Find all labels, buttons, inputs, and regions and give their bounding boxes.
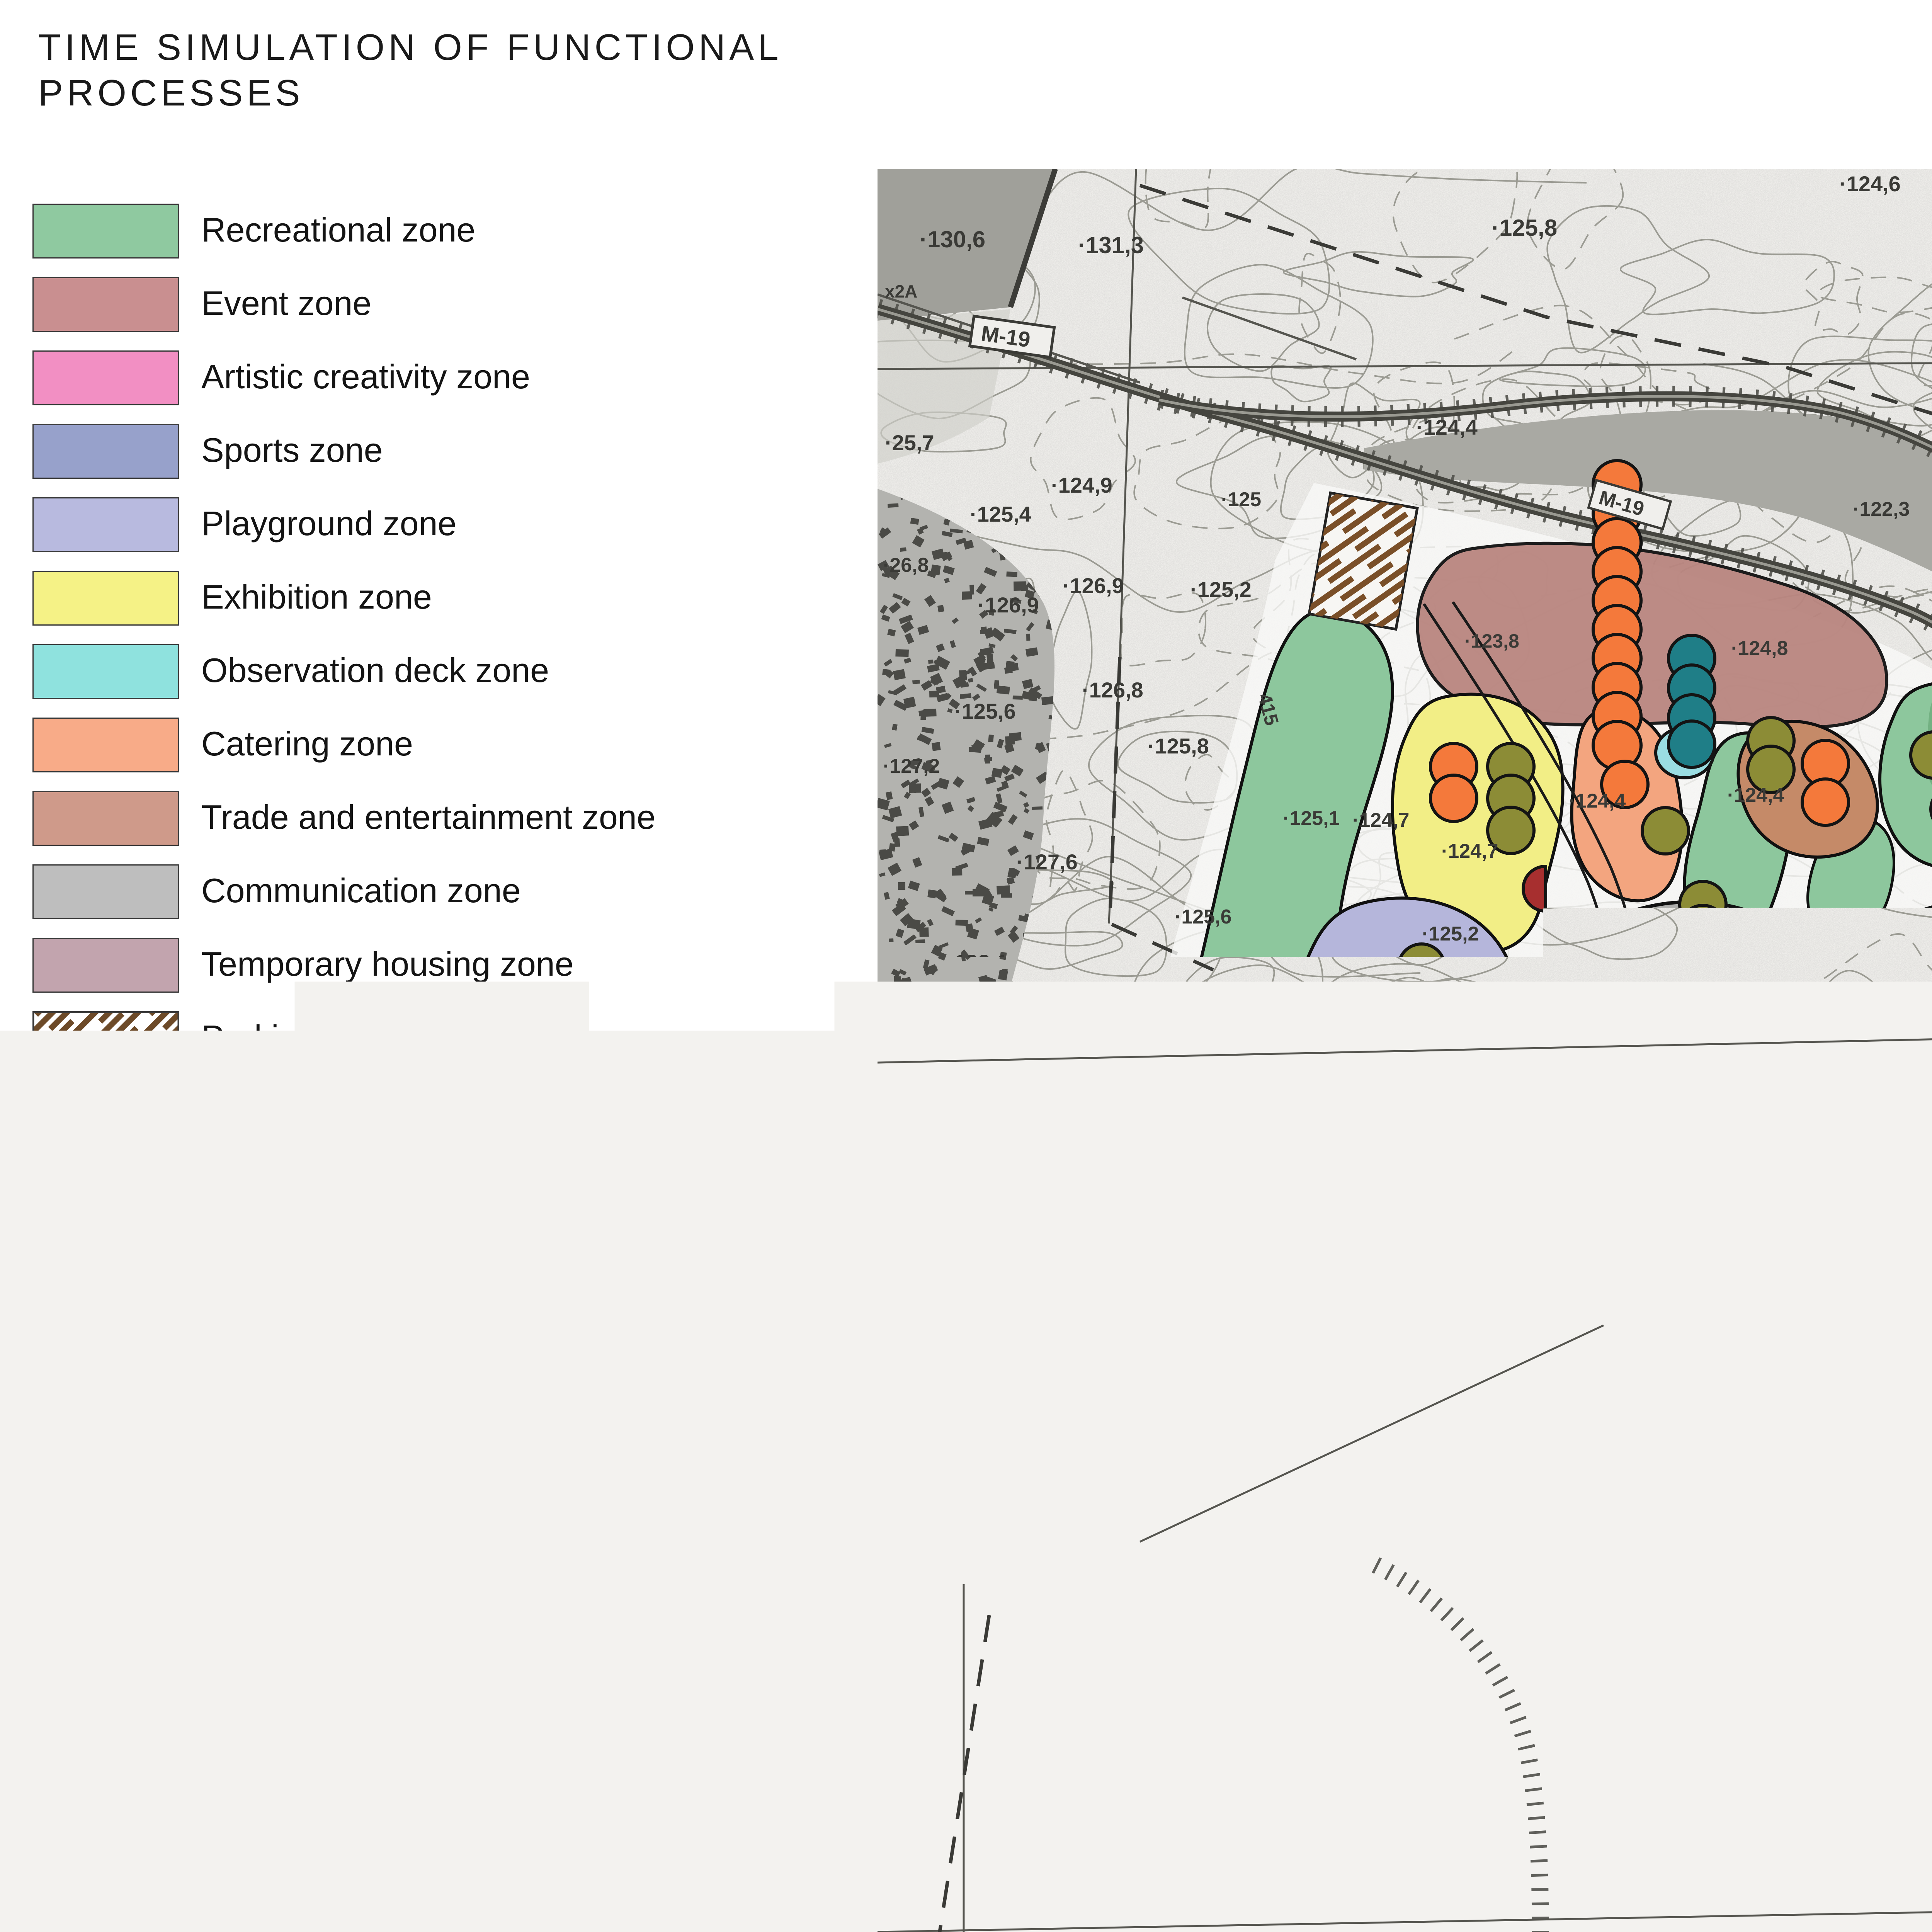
svg-text:·25,7: ·25,7 (885, 430, 934, 455)
svg-text:·127,6: ·127,6 (1399, 1709, 1456, 1732)
svg-text:СЛЛ.: СЛЛ. (1304, 1527, 1345, 1546)
svg-text:·124,8: ·124,8 (1731, 637, 1788, 660)
svg-text:·127,9: ·127,9 (999, 1646, 1060, 1670)
svg-text:·128,4: ·128,4 (1014, 1223, 1076, 1247)
svg-text:·127,3: ·127,3 (1542, 1648, 1599, 1670)
svg-text:·126,8: ·126,8 (1082, 678, 1143, 702)
svg-text:·125,2: ·125,2 (1190, 577, 1252, 602)
svg-text:·125: ·125 (1221, 488, 1261, 511)
svg-text:·130,6: ·130,6 (920, 226, 985, 252)
svg-text:·126,9: ·126,9 (1063, 573, 1124, 598)
svg-text:·125,8: ·125,8 (1492, 215, 1557, 241)
svg-text:·127,2: ·127,2 (883, 1719, 940, 1742)
svg-text:·125,6: ·125,6 (1855, 1723, 1916, 1747)
svg-text:х2А: х2А (885, 281, 917, 301)
svg-text:·127,3: ·127,3 (1066, 1010, 1128, 1034)
svg-text:·127,9: ·127,9 (1078, 1576, 1139, 1600)
svg-text:-12: -12 (1689, 1093, 1715, 1113)
svg-text:·127,4: ·127,4 (1121, 1802, 1182, 1827)
svg-text:·122,3: ·122,3 (1853, 498, 1910, 520)
svg-text:·126,1: ·126,1 (1772, 1787, 1833, 1811)
svg-text:·128,1: ·128,1 (947, 950, 1008, 975)
svg-text:·126,9: ·126,9 (978, 593, 1039, 617)
svg-text:·124,9: ·124,9 (1051, 473, 1112, 497)
svg-text:·123,8: ·123,8 (1464, 630, 1519, 652)
svg-text:·125,1: ·125,1 (1283, 807, 1340, 830)
svg-text:·127,7: ·127,7 (1291, 1603, 1352, 1628)
svg-text:·125,6: ·125,6 (1175, 906, 1231, 928)
svg-text:·127,6: ·127,6 (1175, 1677, 1236, 1701)
svg-text:·128,0: ·128,0 (1070, 1454, 1132, 1479)
svg-text:·131,3: ·131,3 (1078, 232, 1144, 258)
svg-text:·128,6: ·128,6 (896, 1452, 958, 1477)
svg-text:·125,7: ·125,7 (1302, 1178, 1359, 1201)
svg-text:·127,1: ·127,1 (1401, 1899, 1458, 1921)
svg-text:·125,9: ·125,9 (1704, 1651, 1765, 1676)
svg-text:·26,8: ·26,8 (883, 554, 929, 577)
svg-text:·126,4: ·126,4 (1264, 956, 1321, 978)
svg-text:·125,3: ·125,3 (1774, 1599, 1835, 1624)
svg-text:·125,2: ·125,2 (1422, 923, 1479, 945)
svg-text:·124,4: ·124,4 (1416, 415, 1478, 439)
svg-text:·125,8: ·125,8 (1453, 1242, 1510, 1264)
svg-text:·124,7: ·124,7 (1352, 809, 1409, 832)
svg-text:·124,6: ·124,6 (1839, 172, 1901, 196)
svg-text:·127,6: ·127,6 (1016, 850, 1078, 874)
svg-text:·126,0: ·126,0 (1376, 1437, 1432, 1459)
svg-text:·124,4: ·124,4 (1569, 790, 1626, 812)
svg-text:·124,9: ·124,9 (1754, 960, 1811, 982)
svg-text:·124,7: ·124,7 (1441, 840, 1498, 862)
svg-text:·127,9: ·127,9 (1039, 1899, 1101, 1923)
svg-text:·127,6: ·127,6 (993, 1035, 1054, 1060)
svg-text:·127,2: ·127,2 (883, 755, 940, 777)
svg-text:·125,4: ·125,4 (970, 502, 1031, 526)
svg-text:·126,8: ·126,8 (1580, 1548, 1642, 1573)
svg-text:·125,8: ·125,8 (1148, 734, 1209, 758)
svg-text:·124,4: ·124,4 (1727, 784, 1784, 806)
svg-text:·125,6: ·125,6 (954, 699, 1016, 723)
svg-text:·127,3: ·127,3 (1669, 1476, 1726, 1498)
svg-text:·126,8: ·126,8 (1503, 1868, 1560, 1890)
svg-text:·127,9: ·127,9 (958, 1789, 1020, 1813)
svg-text:·126,8: ·126,8 (947, 1074, 1008, 1098)
